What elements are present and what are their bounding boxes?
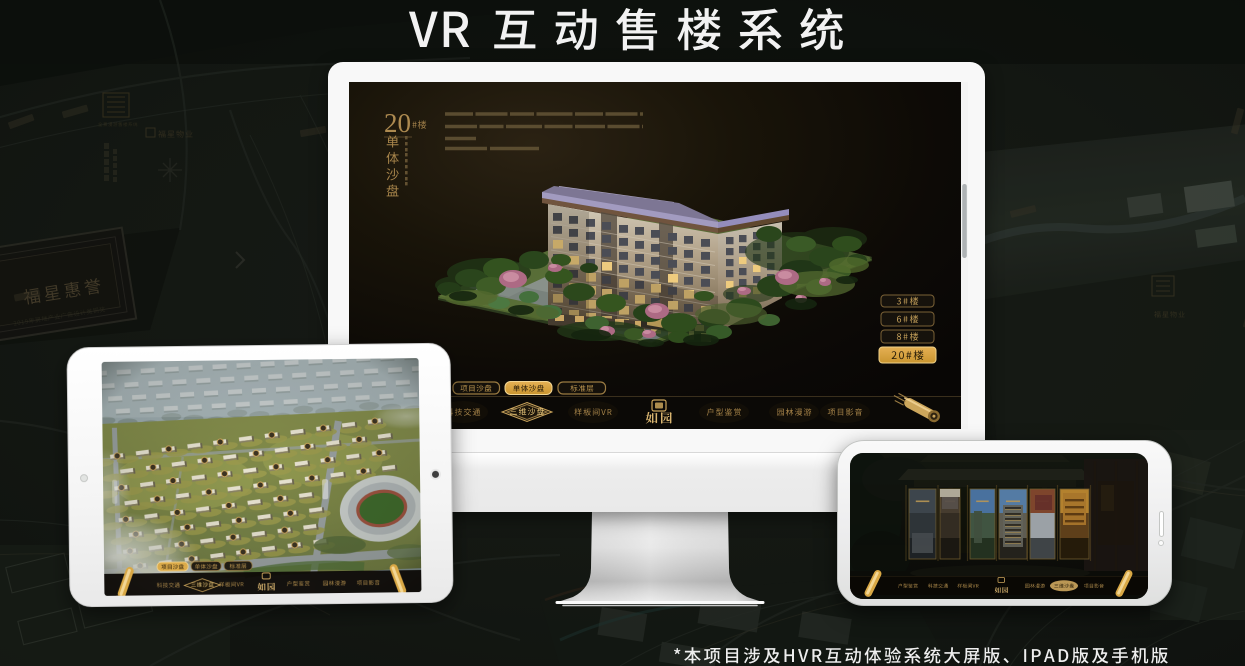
svg-text:20: 20 [384,108,411,138]
